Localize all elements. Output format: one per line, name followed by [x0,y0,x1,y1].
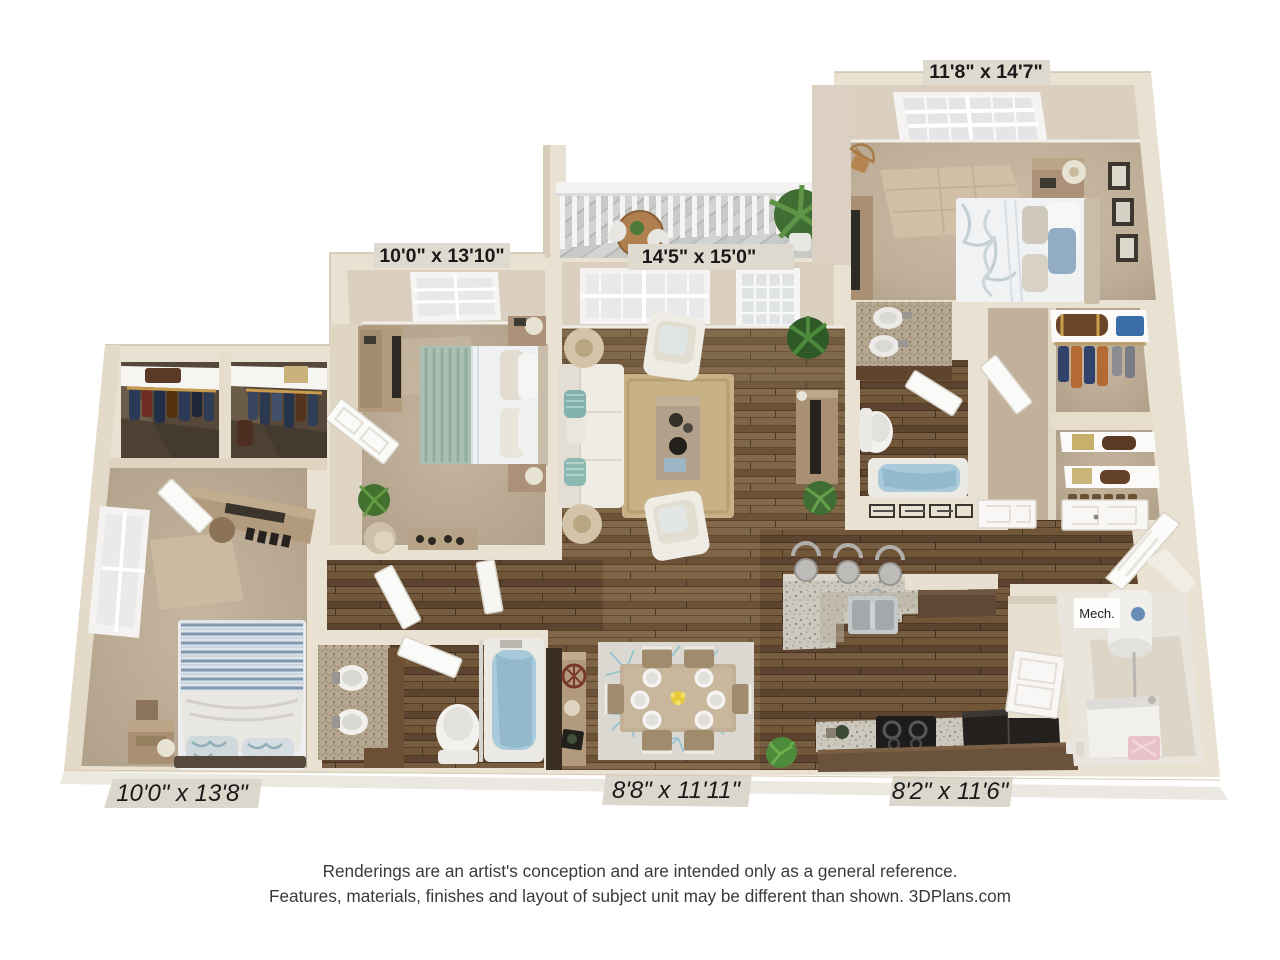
svg-text:14'5" x 15'0": 14'5" x 15'0" [642,246,757,268]
svg-text:Mech.: Mech. [1079,606,1114,621]
svg-text:11'8" x 14'7": 11'8" x 14'7" [929,61,1042,83]
svg-text:8'8" x 11'11": 8'8" x 11'11" [612,777,742,804]
svg-text:Renderings are an artist's con: Renderings are an artist's conception an… [323,861,958,881]
svg-text:10'0" x 13'10": 10'0" x 13'10" [379,245,504,267]
svg-text:8'2" x 11'6": 8'2" x 11'6" [892,778,1010,805]
svg-text:Features, materials, finishes: Features, materials, finishes and layout… [269,886,1011,906]
svg-text:10'0" x 13'8": 10'0" x 13'8" [116,780,249,807]
